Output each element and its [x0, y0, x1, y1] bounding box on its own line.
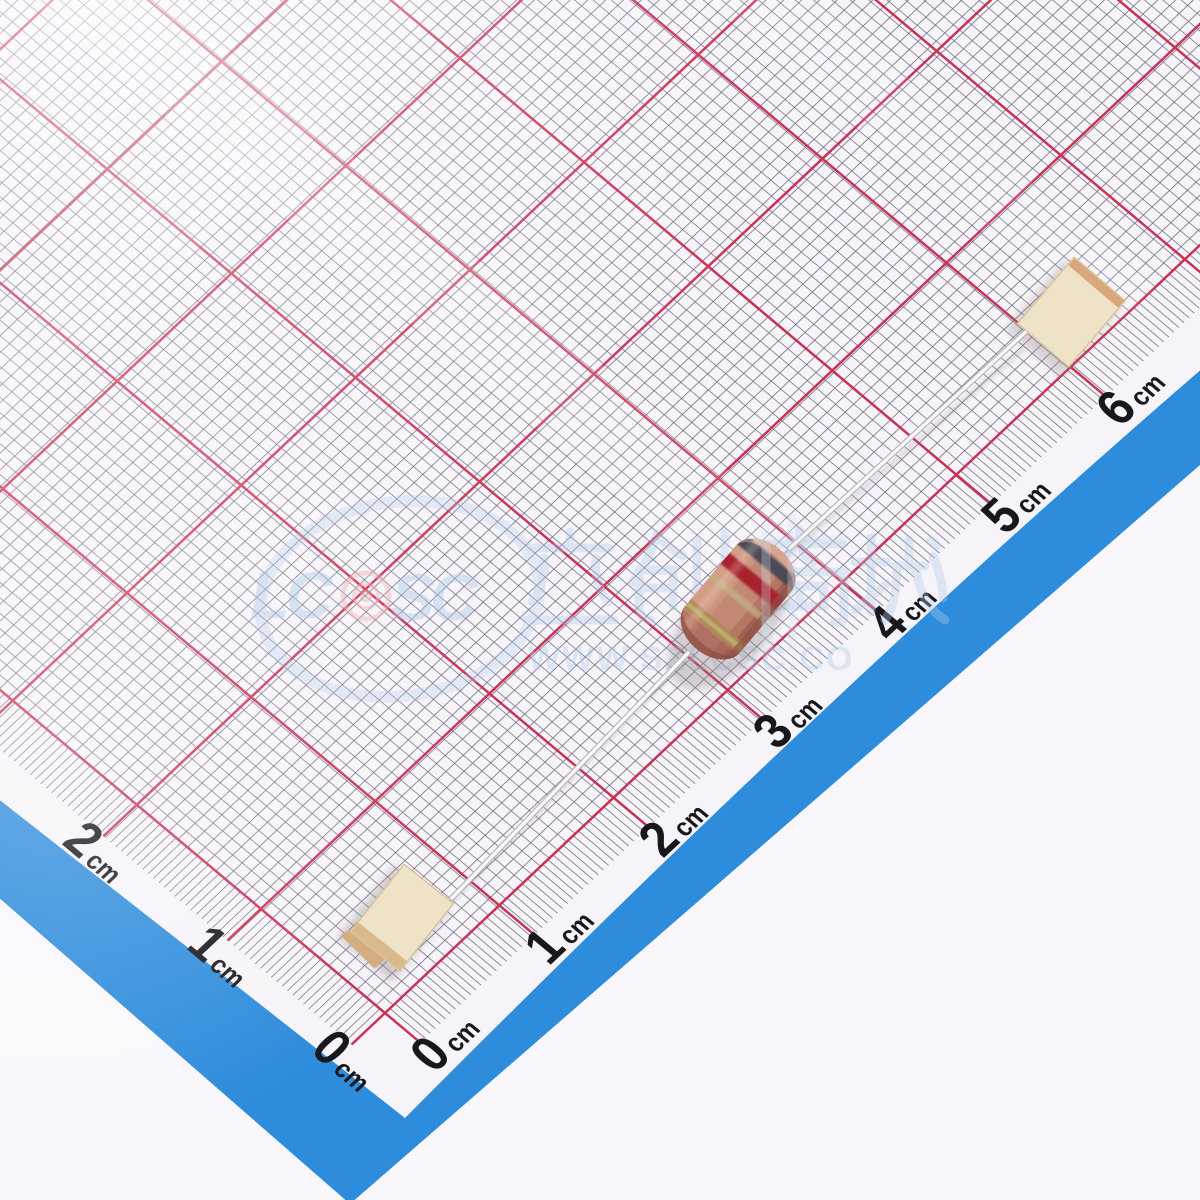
- svg-text:LC: LC: [250, 558, 334, 632]
- svg-text:SC: SC: [391, 560, 479, 634]
